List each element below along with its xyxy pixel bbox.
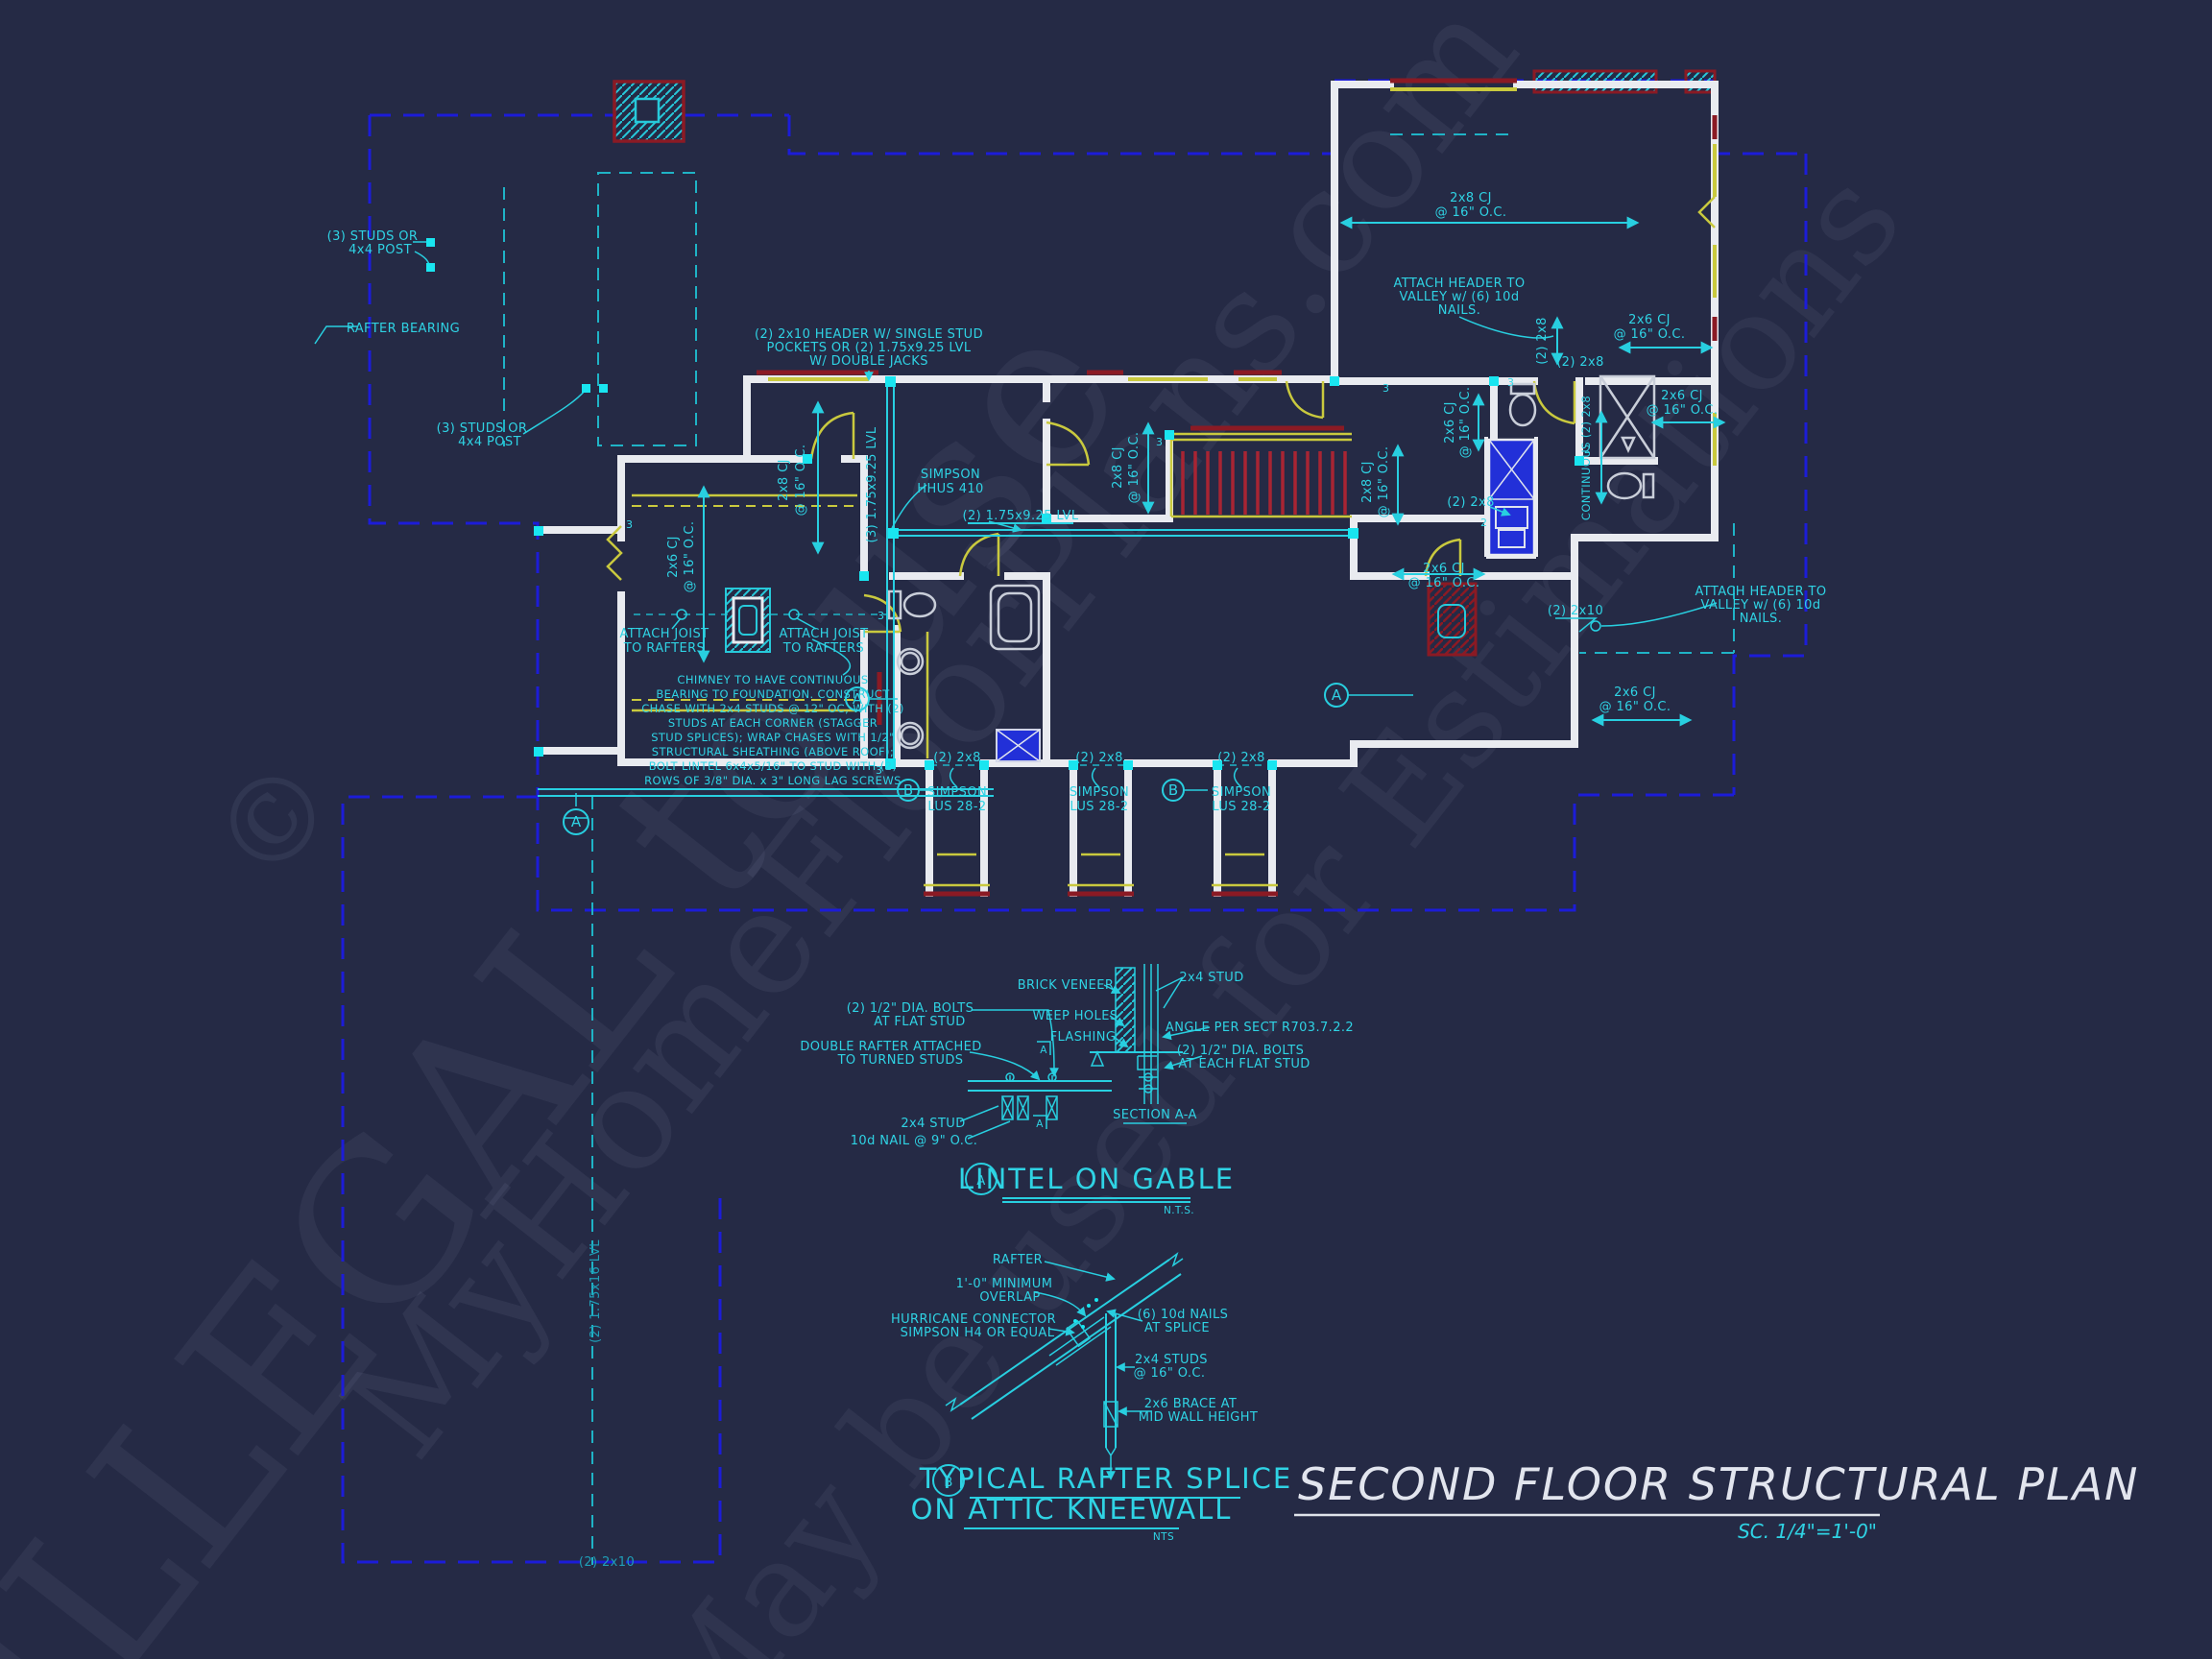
section-marker-a: A [571, 813, 582, 830]
svg-text:AT SPLICE: AT SPLICE [1144, 1321, 1210, 1335]
count-marker: 3 [626, 518, 633, 531]
count-marker: 3 [1507, 376, 1514, 389]
label-chimney-note: CHIMNEY TO HAVE CONTINUOUS [677, 673, 868, 686]
svg-text:ROWS OF 3/8" DIA. x 3" LONG LA: ROWS OF 3/8" DIA. x 3" LONG LAG SCREWS [644, 774, 902, 787]
label-lvl-2x16: (2) 1.75x16 LVL [589, 1239, 603, 1343]
label-2x10: (2) 2x10 [579, 1555, 635, 1570]
label-simpson-hhus: SIMPSON [921, 468, 980, 482]
svg-text:@ 16" O.C.: @ 16" O.C. [1599, 700, 1671, 714]
detail-a-nts: N.T.S. [1164, 1205, 1194, 1216]
closet-shelving [1489, 440, 1534, 555]
label-double-rafter: DOUBLE RAFTER ATTACHED [800, 1040, 981, 1054]
svg-text:LUS 28-2: LUS 28-2 [927, 800, 986, 814]
detail-b-title: B TYPICAL RAFTER SPLICE ON ATTIC KNEEWAL… [911, 1462, 1293, 1543]
label-cj: 2x6 CJ [1661, 389, 1703, 403]
label-cj: 2x6 CJ [1614, 685, 1656, 700]
svg-text:@ 16" O.C.: @ 16" O.C. [1408, 576, 1480, 590]
label-studs-post: (3) STUDS OR [437, 421, 528, 436]
title-block: SECOND FLOOR STRUCTURAL PLAN SC. 1/4"=1'… [1294, 1458, 2139, 1543]
label-rafter-bearing: RAFTER BEARING [347, 322, 460, 336]
svg-text:A: A [1040, 1045, 1047, 1056]
svg-text:@ 16" O.C.: @ 16" O.C. [794, 445, 808, 517]
label-overlap: 1'-0" MINIMUM [956, 1277, 1053, 1291]
label-10d-nail: 10d NAIL @ 9" O.C. [851, 1134, 978, 1148]
watermark-illegal: ILLEGAL to use [0, 269, 1170, 1659]
label-simpson-lus: SIMPSON [927, 785, 987, 800]
label-bolts-flat: (2) 1/2" DIA. BOLTS [847, 1001, 974, 1016]
label-cj: 2x6 CJ [1423, 562, 1465, 576]
svg-text:STUDS AT EACH CORNER (STAGGER: STUDS AT EACH CORNER (STAGGER [668, 716, 878, 730]
svg-text:SIMPSON H4 OR EQUAL: SIMPSON H4 OR EQUAL [901, 1326, 1055, 1340]
label-cj: 2x8 CJ [1450, 191, 1492, 205]
label-cj: 2x8 CJ [1360, 461, 1375, 503]
label-2x8: (2) 2x8 [1556, 355, 1604, 370]
svg-text:W/ DOUBLE JACKS: W/ DOUBLE JACKS [809, 354, 928, 369]
section-marker-b: B [1168, 781, 1178, 799]
label-brick-veneer: BRICK VENEER [1018, 978, 1115, 993]
label-cj: 2x6 CJ [1628, 313, 1671, 327]
blue-shaft [997, 730, 1040, 761]
label-angle-note: ANGLE PER SECT R703.7.2.2 [1166, 1021, 1354, 1035]
svg-text:AT EACH FLAT STUD: AT EACH FLAT STUD [1178, 1057, 1310, 1071]
label-lvl3: (3) 1.75x9.25 LVL [865, 426, 879, 542]
label-weep-holes: WEEP HOLES [1033, 1009, 1118, 1023]
count-marker: 3 [1382, 382, 1389, 395]
label-2x8: (2) 2x8 [1535, 317, 1550, 365]
label-splice-nails: (6) 10d NAILS [1138, 1308, 1229, 1322]
svg-text:NAILS.: NAILS. [1438, 303, 1480, 318]
label-attach-header: ATTACH HEADER TO [1393, 276, 1525, 291]
svg-text:VALLEY w/ (6) 10d: VALLEY w/ (6) 10d [1399, 290, 1519, 304]
section-marker-b: B [903, 781, 913, 799]
svg-text:@ 16" O.C.: @ 16" O.C. [1127, 432, 1142, 504]
label-rafter: RAFTER [993, 1253, 1043, 1267]
label-simpson-lus: SIMPSON [1212, 785, 1271, 800]
label-cj: 2x8 CJ [777, 459, 791, 501]
svg-text:TO RAFTERS: TO RAFTERS [782, 641, 864, 656]
label-2x6-brace: 2x6 BRACE AT [1144, 1397, 1238, 1411]
label-2x8: (2) 2x8 [1447, 495, 1495, 510]
watermark-layer: ILLEGAL to use MyHomeFloorPlans.com May … [0, 0, 1932, 1659]
toilet [1510, 384, 1535, 425]
svg-text:@ 16" O.C.: @ 16" O.C. [1614, 327, 1686, 342]
label-simpson-lus: SIMPSON [1070, 785, 1129, 800]
count-marker: 3 [878, 610, 884, 622]
label-studs-post: (3) STUDS OR [327, 229, 419, 244]
sheet-scale: SC. 1/4"=1'-0" [1738, 1520, 1877, 1543]
svg-text:BOLT LINTEL 6x4x5/16" TO STUD: BOLT LINTEL 6x4x5/16" TO STUD WITH (2) [649, 759, 898, 773]
svg-text:OVERLAP: OVERLAP [979, 1290, 1040, 1305]
detail-b-nts: NTS [1153, 1531, 1174, 1543]
label-section-aa: SECTION A-A [1113, 1108, 1197, 1122]
watermark-copyright: © [186, 734, 362, 907]
label-2x8: (2) 2x8 [933, 751, 981, 765]
label-hurricane: HURRICANE CONNECTOR [891, 1312, 1056, 1327]
svg-text:@ 16" O.C.: @ 16" O.C. [1458, 387, 1473, 459]
detail-b-title-1: TYPICAL RAFTER SPLICE [919, 1462, 1293, 1495]
svg-text:BEARING TO FOUNDATION. CONSTRU: BEARING TO FOUNDATION. CONSTRUCT [656, 687, 890, 701]
svg-text:CHASE WITH 2x4 STUDS @ 12" OC,: CHASE WITH 2x4 STUDS @ 12" OC, WITH (2) [641, 702, 904, 715]
label-cj: 2x8 CJ [1111, 446, 1125, 489]
svg-text:STRUCTURAL SHEATHING (ABOVE RO: STRUCTURAL SHEATHING (ABOVE ROOF); [652, 745, 894, 758]
svg-text:(2) 2x8: (2) 2x8 [1217, 751, 1265, 765]
svg-text:A: A [1036, 1118, 1044, 1130]
chimney-chase-right [1429, 584, 1476, 655]
count-marker: 2 [1480, 517, 1487, 529]
label-flashing: FLASHING [1050, 1030, 1117, 1045]
label-continuous-2x8: CONTINUOUS (2) 2x8 [1579, 396, 1593, 520]
svg-text:TO TURNED STUDS: TO TURNED STUDS [837, 1053, 964, 1068]
section-marker-a: A [1332, 686, 1342, 704]
svg-text:4x4 POST: 4x4 POST [349, 243, 412, 257]
svg-text:LUS 28-2: LUS 28-2 [1070, 800, 1128, 814]
svg-text:MID WALL HEIGHT: MID WALL HEIGHT [1139, 1410, 1258, 1425]
svg-text:@ 16" O.C.: @ 16" O.C. [1377, 446, 1391, 518]
label-2x4-stud: 2x4 STUD [1179, 971, 1243, 985]
label-attach-header: ATTACH HEADER TO [1695, 585, 1826, 599]
label-lvl2: (2) 1.75x9.25 LVL [962, 509, 1078, 523]
svg-text:TO RAFTERS: TO RAFTERS [623, 641, 705, 656]
label-cj: 2x6 CJ [666, 536, 681, 578]
svg-text:@ 16" O.C.: @ 16" O.C. [1647, 403, 1719, 418]
svg-text:VALLEY w/ (6) 10d: VALLEY w/ (6) 10d [1700, 598, 1820, 613]
svg-text:POCKETS OR (2) 1.75x9.25 LVL: POCKETS OR (2) 1.75x9.25 LVL [766, 341, 971, 355]
count-marker: 2 [1584, 444, 1591, 456]
svg-text:4x4 POST: 4x4 POST [458, 435, 521, 449]
svg-text:@ 16" O.C.: @ 16" O.C. [1134, 1366, 1206, 1381]
label-cj: 2x6 CJ [1443, 401, 1457, 444]
svg-text:@ 16" O.C.: @ 16" O.C. [1435, 205, 1507, 220]
blueprint-canvas: ILLEGAL to use MyHomeFloorPlans.com May … [0, 0, 2212, 1659]
count-marker: 3 [876, 764, 882, 777]
svg-text:NAILS.: NAILS. [1740, 612, 1782, 626]
svg-text:@ 16" O.C.: @ 16" O.C. [683, 521, 697, 593]
svg-text:STUD SPLICES); WRAP CHASES WIT: STUD SPLICES); WRAP CHASES WITH 1/2" [651, 731, 895, 744]
label-header-note: (2) 2x10 HEADER W/ SINGLE STUD [755, 327, 983, 342]
label-attach-joist: ATTACH JOIST [619, 627, 709, 641]
count-marker: 3 [1156, 436, 1163, 448]
svg-text:HHUS 410: HHUS 410 [917, 482, 983, 496]
label-attach-joist: ATTACH JOIST [779, 627, 868, 641]
svg-text:LUS 28-2: LUS 28-2 [1212, 800, 1270, 814]
label-2x4-stud: 2x4 STUD [901, 1117, 965, 1131]
svg-text:AT FLAT STUD: AT FLAT STUD [874, 1015, 965, 1029]
detail-b-title-2: ON ATTIC KNEEWALL [911, 1493, 1233, 1526]
svg-text:(2) 2x8: (2) 2x8 [1075, 751, 1123, 765]
label-2x10: (2) 2x10 [1548, 604, 1603, 618]
sheet-title: SECOND FLOOR STRUCTURAL PLAN [1298, 1458, 2139, 1510]
label-2x4-studs: 2x4 STUDS [1135, 1353, 1208, 1367]
label-bolts-each: (2) 1/2" DIA. BOLTS [1177, 1044, 1305, 1058]
detail-a-title: LINTEL ON GABLE [958, 1163, 1235, 1195]
